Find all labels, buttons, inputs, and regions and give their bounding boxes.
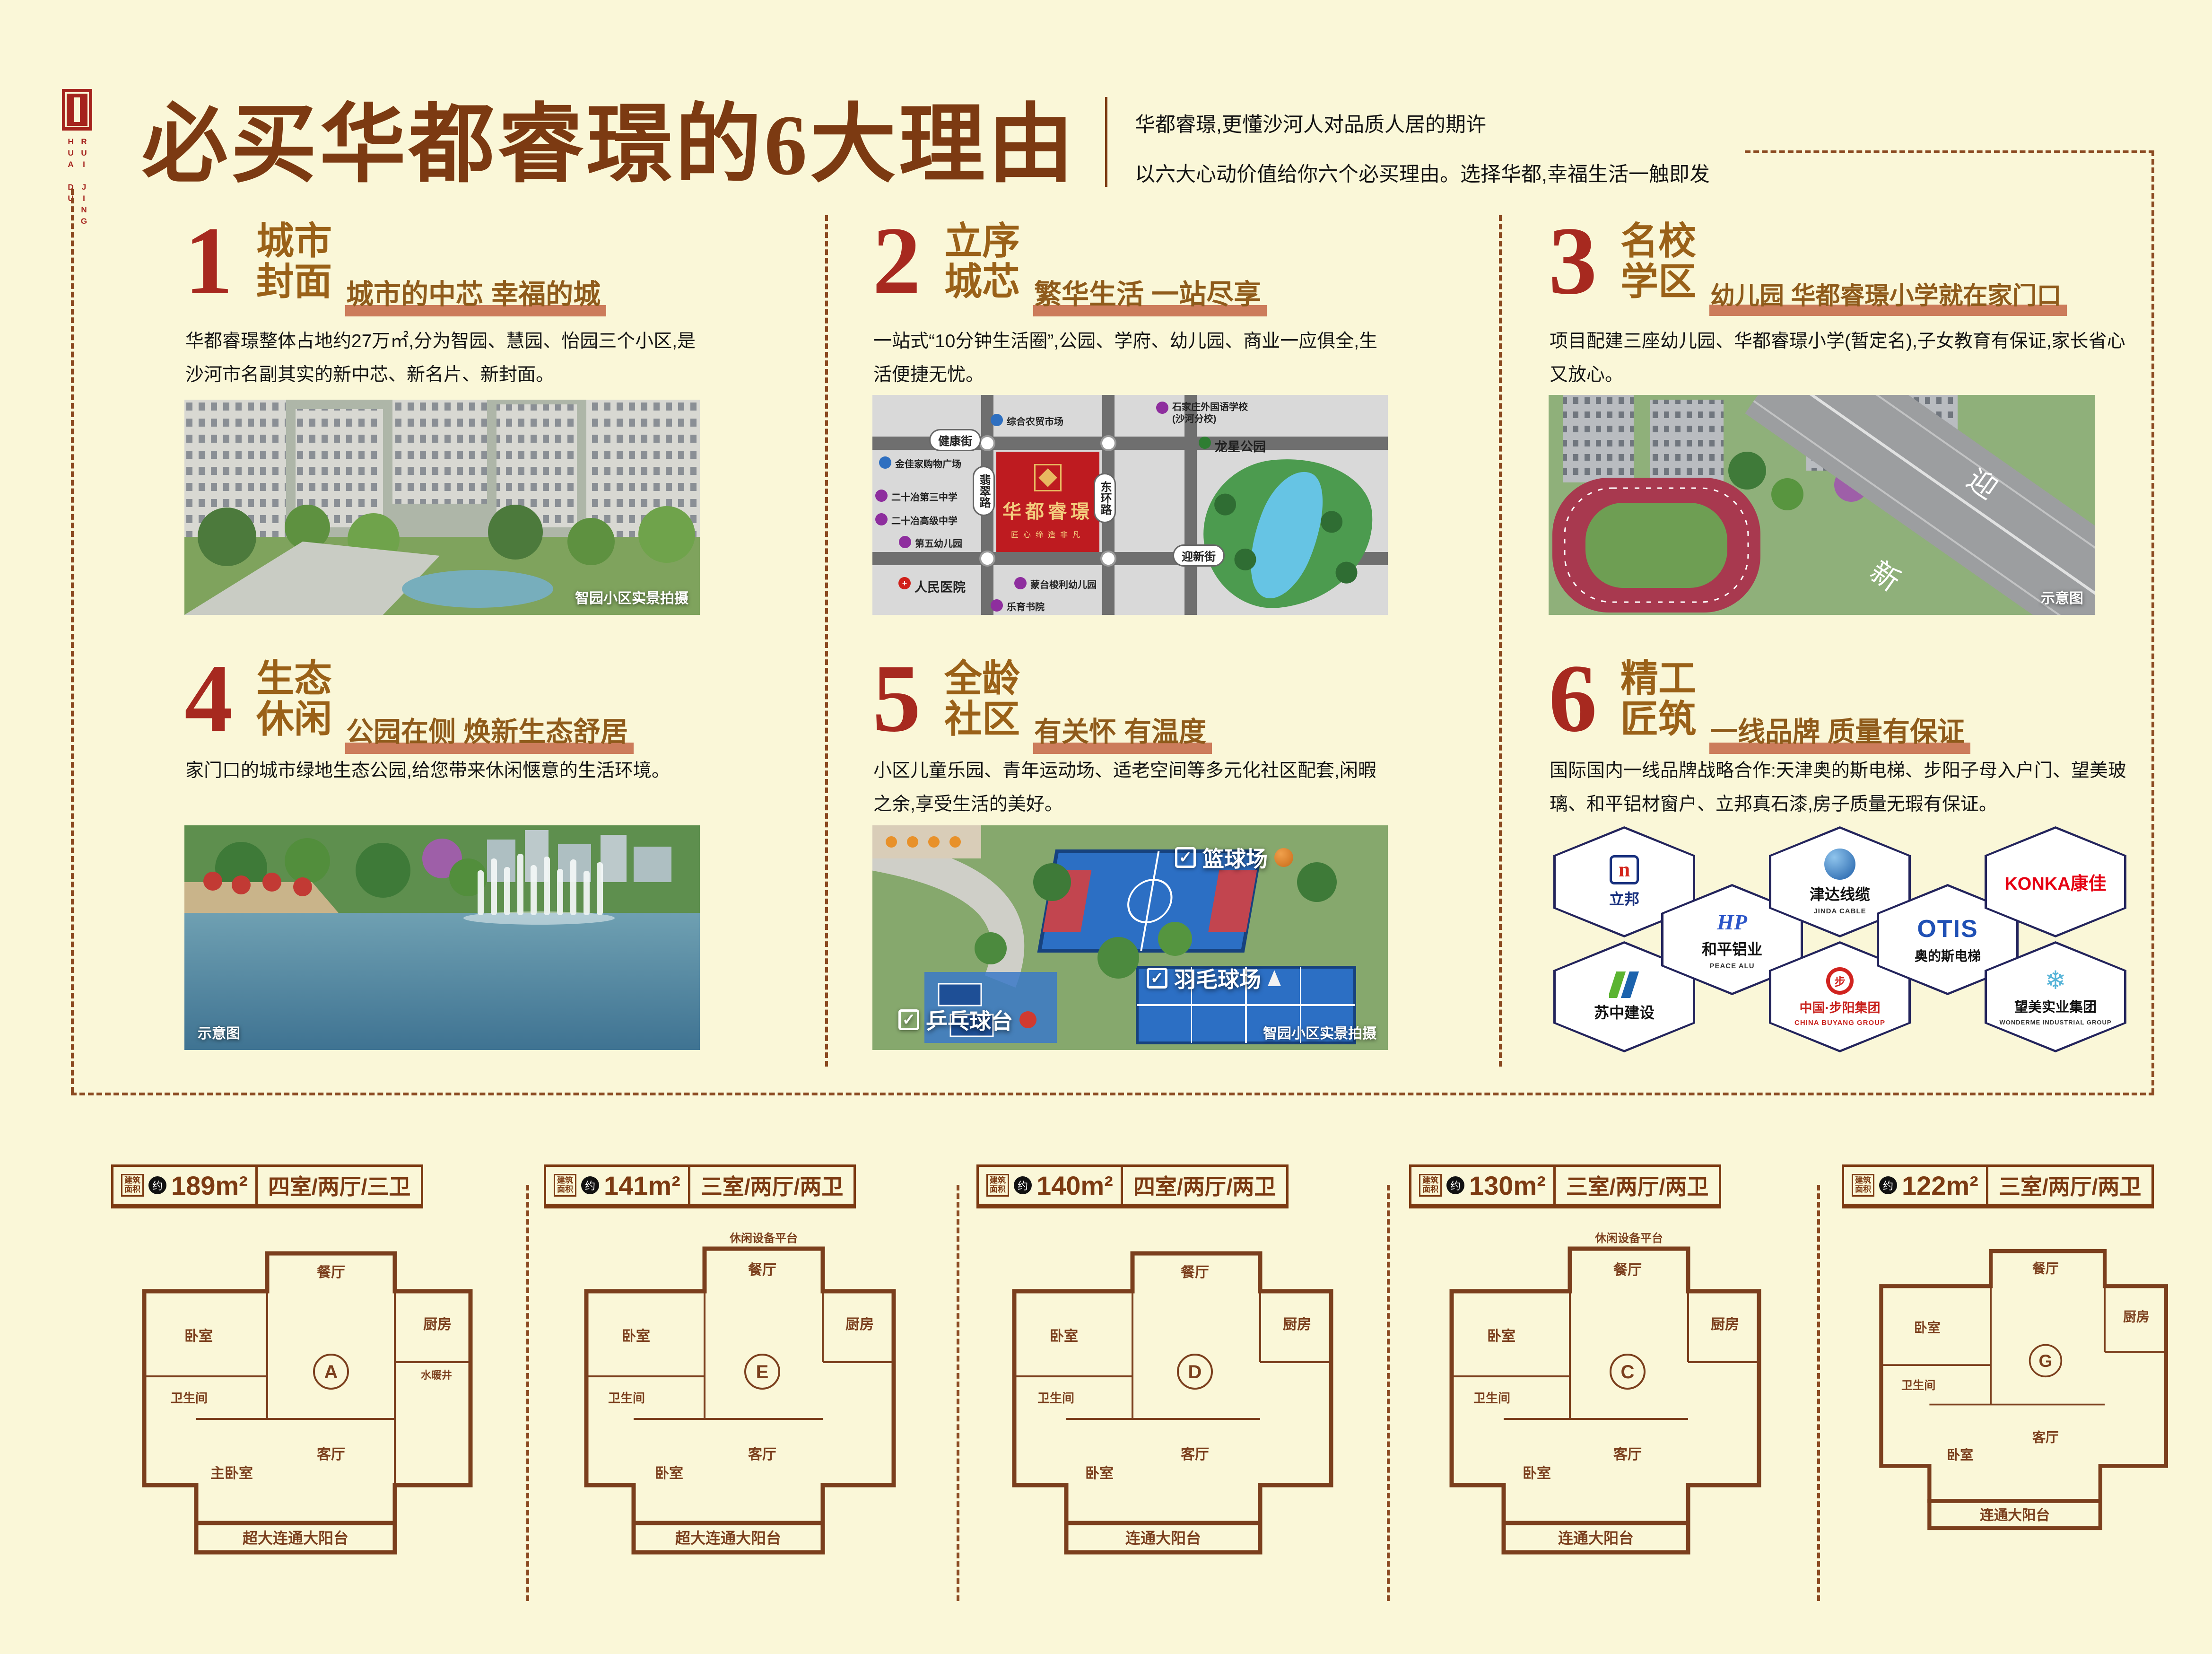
header-tagline: 华都睿璟,更懂沙河人对品质人居的期许 以六大心动价值给你六个必买理由。选择华都,… (1135, 100, 1710, 200)
room-label: 客厅 (1613, 1446, 1642, 1462)
section-all-age-community: 5 全龄 社区 有关怀 有温度 小区儿童乐园、青年运动场、适老空间等多元化社区配… (872, 653, 1388, 1059)
section-city-core: 2 立序 城芯 繁华生活 一站尽享 一站式“10分钟生活圈”,公园、学府、幼儿园… (872, 215, 1388, 617)
project-name: 华都睿璟 (1002, 496, 1093, 524)
mall-icon (879, 456, 891, 469)
school-icon (875, 513, 888, 525)
brand-sub: WONDERME INDUSTRIAL GROUP (1999, 1019, 2111, 1026)
mini-line1: 建筑 (557, 1176, 573, 1185)
floorplan-label: 建筑 面积 约 122m² 三室/两厅/两卫 (1842, 1164, 2154, 1208)
room-label: 卧室 (1523, 1465, 1551, 1481)
brand-name: 和平铝业 (1702, 937, 1762, 959)
brand-name: 望美实业集团 (2014, 996, 2097, 1016)
mini-line2: 面积 (1855, 1185, 1871, 1194)
mini-line2: 面积 (1422, 1185, 1438, 1194)
unit-letter: G (2039, 1351, 2053, 1371)
poi-market: 综合农贸市场 (991, 414, 1063, 428)
section-1-body: 华都睿璟整体占地约27万㎡,分为智园、慧园、怡园三个小区,是沙河市名副其实的新中… (185, 325, 701, 392)
floorplan-drawing: 休闲设备平台 卧室 餐厅 厨房 卫生间 客厅 卧室 C 连通大阳台 (1409, 1220, 1797, 1580)
floorplan-layout: 三室/两厅/两卫 (688, 1167, 854, 1204)
mini-line1: 建筑 (1422, 1176, 1438, 1185)
hospital-cross-icon: + (898, 577, 911, 589)
poi-label: 综合农贸市场 (1007, 414, 1063, 428)
room-label: 卫生间 (171, 1391, 208, 1405)
street-pill-bottom: 迎新街 (1173, 544, 1225, 567)
tagline-line2: 以六大心动价值给你六个必买理由。选择华都,幸福生活一触即发 (1135, 150, 1710, 200)
section-6-title-line1: 精工 (1620, 658, 1696, 699)
mini-line1: 建筑 (1855, 1176, 1871, 1185)
balcony-label: 超大连通大阳台 (675, 1530, 781, 1547)
floorplan-layout: 四室/两厅/三卫 (255, 1167, 421, 1204)
park-tree-icon (1320, 510, 1344, 534)
brand-name: 中国·步阳集团 (1800, 998, 1881, 1016)
floorplan-140: 建筑 面积 约 140m² 四室/两厅/两卫 卧室 餐厅 厨房 卫生间 客厅 卧… (976, 1164, 1364, 1208)
dashed-right-edge (2151, 150, 2154, 1094)
poi-academy: 乐育书院 (991, 599, 1045, 613)
section-3-number: 3 (1549, 215, 1597, 307)
poi-foreign-school: 石家庄外国语学校(沙河分校) (1156, 402, 1260, 425)
poi-label: 金佳家购物广场 (895, 456, 961, 470)
peace-alu-logo-icon: HP (1717, 910, 1747, 935)
brand-name: 立邦 (1609, 887, 1639, 909)
tagline-line1: 华都睿璟,更懂沙河人对品质人居的期许 (1135, 100, 1710, 150)
brand-honeycomb: n 立邦 苏中建设 HP 和平铝业 PEACE ALU 津达线缆 JINDA C… (1553, 825, 2135, 1053)
floorplan-layout: 三室/两厅/两卫 (1553, 1167, 1719, 1204)
room-label: 卧室 (1085, 1465, 1114, 1481)
room-label: 厨房 (1283, 1317, 1311, 1332)
room-label: 餐厅 (1613, 1262, 1642, 1278)
room-label: 卫生间 (1473, 1391, 1510, 1405)
page-title: 必买华都睿璟的6大理由 (142, 75, 1077, 199)
section-3-title-line1: 名校 (1620, 221, 1696, 262)
unit-letter: C (1621, 1362, 1635, 1383)
poi-montessori: 蒙台梭利幼儿园 (1014, 577, 1097, 591)
brand-name: 苏中建设 (1594, 1001, 1655, 1023)
section-3-subtitle: 幼儿园 华都睿璟小学就在家门口 (1709, 276, 2067, 316)
road-junction (979, 435, 995, 451)
room-label: 餐厅 (748, 1262, 776, 1278)
floorplan-divider (1817, 1185, 1820, 1601)
poi-high-school: 二十冶高级中学 (875, 513, 958, 527)
project-block: 华都睿璟 匠心缔造非凡 (996, 452, 1099, 552)
floorplan-area: 140m² (1036, 1170, 1113, 1201)
area-mini-box: 建筑 面积 (121, 1174, 144, 1196)
section-2-subtitle: 繁华生活 一站尽享 (1033, 272, 1267, 316)
unit-letter: A (324, 1362, 338, 1383)
floorplan-area: 130m² (1469, 1170, 1546, 1201)
section-1-subtitle: 城市的中芯 幸福的城 (345, 272, 606, 316)
section-4-body: 家门口的城市绿地生态公园,给您带来休闲惬意的生活环境。 (185, 754, 701, 788)
section-6-title: 精工 匠筑 (1620, 658, 1696, 739)
floorplan-label: 建筑 面积 约 189m² 四室/两厅/三卫 (111, 1164, 423, 1208)
road-junction (979, 551, 995, 567)
poi-label: 二十冶第三中学 (891, 490, 958, 503)
dashed-col-divider-1 (825, 215, 828, 1067)
section-5-title-line1: 全龄 (944, 658, 1020, 699)
floorplan-divider (1387, 1185, 1390, 1601)
floorplan-drawing: 休闲设备平台 卧室 餐厅 厨房 卫生间 客厅 卧室 E 超大连通大阳台 (544, 1220, 932, 1580)
photo-caption: 示意图 (198, 1022, 240, 1042)
section-city-cover: 1 城市 封面 城市的中芯 幸福的城 华都睿璟整体占地约27万㎡,分为智园、慧园… (184, 215, 700, 617)
section-eco-leisure: 4 生态 休闲 公园在侧 焕新生态舒居 家门口的城市绿地生态公园,给您带来休闲惬… (184, 653, 700, 1059)
school-icon (1156, 402, 1168, 414)
poster-page: { "page": { "bg": "#FAF7D8", "accent_bro… (0, 0, 2212, 1654)
section-1-title-line2: 封面 (256, 262, 332, 302)
dashed-col-divider-2 (1499, 215, 1502, 1067)
road-junction (1100, 551, 1116, 567)
poi-mall: 金佳家购物广场 (879, 456, 961, 470)
floorplan-drawing: 卧室 餐厅 厨房 卫生间 客厅 卧室 G 连通大阳台 (1842, 1220, 2201, 1554)
header-divider (1105, 97, 1107, 187)
section-2-body: 一站式“10分钟生活圈”,公园、学府、幼儿园、商业一应俱全,生活便捷无忧。 (873, 325, 1389, 392)
buyang-logo-icon: 步 (1826, 967, 1854, 995)
section-3-title: 名校 学区 (1620, 221, 1696, 302)
room-label: 卫生间 (608, 1391, 645, 1405)
floorplan-122: 建筑 面积 约 122m² 三室/两厅/两卫 卧室 餐厅 厨房 卫生间 客厅 卧… (1842, 1164, 2211, 1208)
room-label: 卧室 (655, 1465, 683, 1481)
checkbox-icon (898, 1009, 919, 1030)
section-4-title-line2: 休闲 (256, 699, 332, 740)
brand-sub: PEACE ALU (1709, 962, 1754, 970)
mini-line1: 建筑 (124, 1176, 140, 1185)
section-6-title-line2: 匠筑 (1620, 699, 1696, 740)
checkbox-icon (1175, 847, 1196, 868)
court-tag-basketball: 篮球场 (1175, 842, 1293, 873)
room-label: 厨房 (423, 1317, 452, 1332)
room-label: 客厅 (748, 1446, 776, 1462)
room-label: 客厅 (317, 1446, 345, 1462)
section-2-title-line1: 立序 (944, 221, 1020, 262)
section-5-subtitle: 有关怀 有温度 (1033, 709, 1212, 754)
photo-caption: 智园小区实景拍摄 (1263, 1022, 1376, 1042)
brand-logo: HUA DU RUI JING (56, 89, 98, 228)
floorplan-area: 189m² (171, 1170, 248, 1201)
room-label: 卧室 (1050, 1328, 1078, 1344)
approx-badge: 约 (581, 1176, 599, 1194)
room-label-extra: 水暖井 (421, 1369, 452, 1381)
floorplan-layout: 三室/两厅/两卫 (1986, 1167, 2152, 1204)
photo-community: 智园小区实景拍摄 (184, 400, 700, 615)
road-east-road (1184, 395, 1197, 615)
photo-caption: 智园小区实景拍摄 (575, 586, 688, 607)
section-2-title: 立序 城芯 (944, 221, 1020, 302)
approx-badge: 约 (1879, 1176, 1897, 1194)
poi-kindergarten-5: 第五幼儿园 (899, 536, 962, 550)
section-3-body: 项目配建三座幼儿园、华都睿璟小学(暂定名),子女教育有保证,家长省心又放心。 (1550, 325, 2141, 392)
room-label: 卧室 (1487, 1328, 1515, 1344)
section-4-subtitle: 公园在侧 焕新生态舒居 (345, 709, 634, 754)
kindergarten-icon (899, 536, 911, 548)
room-label: 主卧室 (210, 1465, 253, 1481)
dashed-bottom-edge (71, 1093, 2154, 1095)
section-6-subtitle: 一线品牌 质量有保证 (1709, 709, 1970, 754)
section-1-title-line1: 城市 (256, 221, 332, 262)
dashed-top-edge (1745, 150, 2154, 153)
mini-line2: 面积 (990, 1185, 1006, 1194)
room-label: 厨房 (1711, 1317, 1739, 1332)
community-photo-art (184, 400, 700, 615)
room-label: 餐厅 (1181, 1265, 1209, 1280)
room-label: 卧室 (1947, 1447, 1973, 1462)
brand-name: KONKA康佳 (2004, 869, 2106, 895)
poi-label: 石家庄外国语学校(沙河分校) (1172, 402, 1260, 425)
court-tag-label: 乒乓球台 (926, 1004, 1013, 1035)
poi-label: 人民医院 (914, 577, 966, 595)
running-track (1552, 478, 1760, 613)
dashed-left-edge (71, 189, 74, 1093)
area-mini-box: 建筑 面积 (1852, 1174, 1874, 1196)
room-label: 客厅 (2032, 1430, 2059, 1444)
platform-label: 休闲设备平台 (1594, 1232, 1663, 1245)
mini-line2: 面积 (557, 1185, 573, 1194)
brand-seal-icon (62, 89, 92, 131)
section-1-number: 1 (184, 215, 233, 307)
photo-caption: 示意图 (2041, 586, 2083, 607)
lake-water (184, 913, 700, 1050)
section-3-title-line2: 学区 (1620, 262, 1696, 302)
poi-label: 二十冶高级中学 (891, 513, 958, 527)
room-label: 餐厅 (2032, 1261, 2059, 1276)
poi-hospital: + 人民医院 (898, 577, 966, 595)
room-label: 卫生间 (1037, 1391, 1074, 1405)
academy-icon (991, 599, 1003, 612)
floorplan-label: 建筑 面积 约 141m² 三室/两厅/两卫 (544, 1164, 856, 1208)
section-2-title-line2: 城芯 (944, 262, 1020, 302)
balcony-label: 超大连通大阳台 (243, 1530, 348, 1547)
section-5-body: 小区儿童乐园、青年运动场、适老空间等多元化社区配套,闲暇之余,享受生活的美好。 (873, 754, 1389, 822)
floorplan-label: 建筑 面积 约 140m² 四室/两厅/两卫 (976, 1164, 1289, 1208)
section-2-number: 2 (872, 215, 921, 307)
floorplan-141: 建筑 面积 约 141m² 三室/两厅/两卫 休闲设备平台 卧室 餐厅 厨房 卫… (544, 1164, 932, 1208)
balcony-label: 连通大阳台 (1558, 1530, 1634, 1547)
floorplan-drawing: 卧室 餐厅 厨房 卫生间 客厅 主卧室 水暖井 A 超大连通大阳台 (111, 1220, 499, 1580)
photo-school-aerial: 迎 新 示意图 (1549, 395, 2095, 615)
room-label: 卧室 (184, 1328, 213, 1344)
room-label: 厨房 (2123, 1309, 2150, 1324)
road-junction (1100, 435, 1116, 451)
checkbox-icon (1147, 968, 1167, 989)
street-pill-top: 健康街 (929, 429, 981, 451)
street-pill-left: 翡翠路 (973, 466, 995, 516)
brand-latin-col2: RUI JING (79, 137, 88, 228)
school-icon (875, 490, 888, 502)
kindergarten-icon (1014, 577, 1027, 589)
platform-label: 休闲设备平台 (729, 1232, 798, 1245)
park-icon (1199, 437, 1211, 449)
jinda-logo-icon (1824, 849, 1855, 880)
room-label: 卧室 (622, 1328, 650, 1344)
suzhong-logo-icon (1609, 971, 1639, 998)
poi-label: 蒙台梭利幼儿园 (1030, 577, 1097, 591)
section-1-title: 城市 封面 (256, 221, 332, 302)
area-mini-box: 建筑 面积 (554, 1174, 576, 1196)
pond (402, 570, 553, 608)
brand-name: 津达线缆 (1810, 883, 1870, 904)
floorplan-130: 建筑 面积 约 130m² 三室/两厅/两卫 休闲设备平台 卧室 餐厅 厨房 卫… (1409, 1164, 1797, 1208)
section-school-district: 3 名校 学区 幼儿园 华都睿璟小学就在家门口 项目配建三座幼儿园、华都睿璟小学… (1549, 215, 2140, 617)
section-6-number: 6 (1549, 653, 1597, 745)
brand-latin: HUA DU RUI JING (66, 137, 88, 228)
brand-sub: 奥的斯电梯 (1915, 946, 1981, 965)
floorplan-drawing: 卧室 餐厅 厨房 卫生间 客厅 卧室 D 连通大阳台 (976, 1220, 1364, 1580)
court-tag-badminton: 羽毛球场 (1147, 963, 1281, 994)
approx-badge: 约 (148, 1176, 166, 1194)
project-ornament-icon (1034, 464, 1062, 491)
room-label: 卧室 (1914, 1321, 1941, 1335)
court-tag-label: 篮球场 (1202, 842, 1268, 873)
nippon-logo-icon: n (1610, 855, 1639, 884)
room-label: 卫生间 (1901, 1379, 1935, 1392)
basketball-icon (1274, 848, 1293, 867)
section-6-body: 国际国内一线品牌战略合作:天津奥的斯电梯、步阳子母入户门、望美玻璃、和平铝材窗户… (1550, 754, 2141, 822)
poi-label: 第五幼儿园 (915, 536, 962, 550)
photo-sports-courts: 篮球场 羽毛球场 乒乓球台 智园小区实景拍摄 (872, 825, 1388, 1050)
balcony-label: 连通大阳台 (1980, 1507, 2050, 1523)
balcony-label: 连通大阳台 (1125, 1530, 1201, 1547)
brand-sub: JINDA CABLE (1813, 907, 1866, 915)
section-4-title-line1: 生态 (256, 658, 332, 699)
approx-badge: 约 (1446, 1176, 1464, 1194)
park-tree-icon (1334, 560, 1359, 585)
park-lake (1233, 462, 1340, 607)
floorplan-layout: 四室/两厅/两卫 (1121, 1167, 1287, 1204)
location-map: 健康街 迎新街 翡翠路 东环路 华都睿璟 匠心缔造非凡 龙星公园 综合农贸市场 … (872, 395, 1388, 615)
floorplan-divider (957, 1185, 959, 1601)
mini-line1: 建筑 (990, 1176, 1006, 1185)
section-4-title: 生态 休闲 (256, 658, 332, 739)
floorplan-area: 122m² (1902, 1170, 1978, 1201)
section-5-title-line2: 社区 (944, 699, 1020, 740)
court-tag-pingpong: 乒乓球台 (898, 1004, 1036, 1035)
poi-label: 乐育书院 (1007, 599, 1045, 613)
poi-park-label: 龙星公园 (1199, 437, 1266, 455)
unit-letter: D (1188, 1362, 1202, 1383)
section-quality-craft: 6 精工 匠筑 一线品牌 质量有保证 国际国内一线品牌战略合作:天津奥的斯电梯、… (1549, 653, 2140, 1059)
brand-name: OTIS (1917, 915, 1978, 943)
park-tree-icon (1213, 492, 1237, 516)
market-icon (991, 414, 1003, 426)
poi-label: 龙星公园 (1215, 437, 1266, 455)
wonderme-logo-icon: ❄ (2045, 968, 2066, 993)
brand-latin-col1: HUA DU (66, 137, 75, 228)
park-area (1196, 450, 1381, 615)
photo-park-lake: 示意图 (184, 825, 700, 1050)
floorplan-divider (526, 1185, 529, 1601)
section-5-number: 5 (872, 653, 921, 745)
section-4-number: 4 (184, 653, 233, 745)
room-label: 餐厅 (317, 1265, 345, 1280)
section-5-title: 全龄 社区 (944, 658, 1020, 739)
brand-sub: CHINA BUYANG GROUP (1794, 1019, 1885, 1027)
room-label: 厨房 (845, 1317, 874, 1332)
floorplan-label: 建筑 面积 约 130m² 三室/两厅/两卫 (1409, 1164, 1721, 1208)
paddle-icon (1019, 1011, 1036, 1028)
approx-badge: 约 (1014, 1176, 1032, 1194)
area-mini-box: 建筑 面积 (1419, 1174, 1442, 1196)
room-label: 客厅 (1181, 1446, 1209, 1462)
poi-middle-school-3: 二十冶第三中学 (875, 490, 958, 503)
floorplan-189: 建筑 面积 约 189m² 四室/两厅/三卫 卧室 餐厅 厨房 卫生间 客厅 主… (111, 1164, 499, 1208)
street-pill-right: 东环路 (1094, 473, 1116, 523)
school-photo-art: 迎 新 (1549, 395, 2095, 615)
project-slogan: 匠心缔造非凡 (1011, 528, 1085, 540)
park-photo-art (184, 825, 700, 1050)
floorplan-area: 141m² (604, 1170, 680, 1201)
unit-letter: E (756, 1362, 769, 1383)
shuttlecock-icon (1268, 970, 1281, 986)
mini-line2: 面积 (124, 1185, 140, 1194)
court-tag-label: 羽毛球场 (1174, 963, 1261, 994)
area-mini-box: 建筑 面积 (986, 1174, 1009, 1196)
